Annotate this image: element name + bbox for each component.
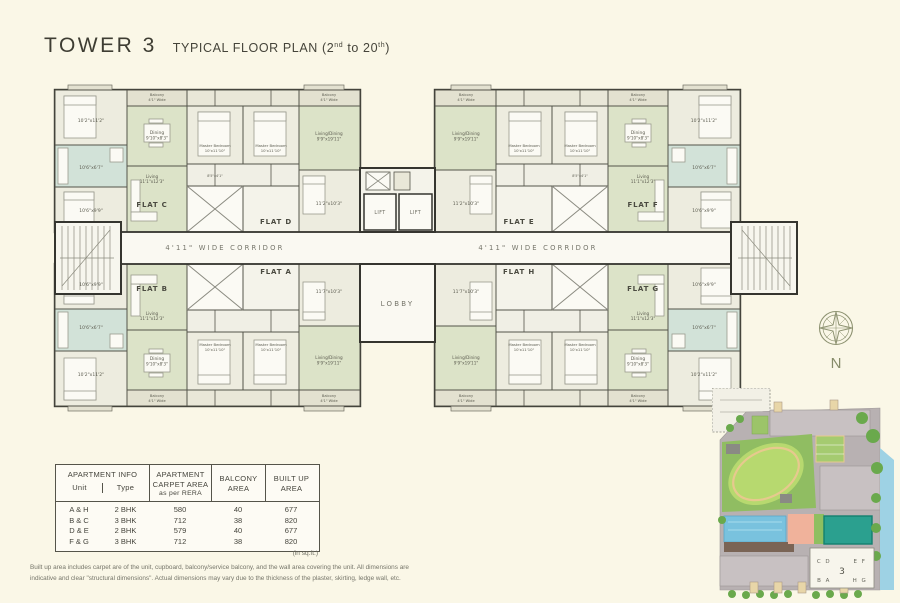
lift-label: LIFT [374,210,385,216]
tower3-flats-ba: B A [817,578,831,584]
header-line: CARPET AREA [151,480,210,490]
cell-built: 677 [265,526,317,537]
header-carpet-area: APARTMENT CARPET AREA as per RERA [149,465,211,501]
page-title: TOWER 3 [44,34,157,58]
header-line: as per RERA [151,490,210,499]
cell-balcony: 40 [211,505,265,516]
corridor-label-right: 4'11" WIDE CORRIDOR [478,244,597,252]
flat-h-label: FLAT H [503,268,535,276]
cell-balcony: 38 [211,537,265,548]
corridor-label-left: 4'11" WIDE CORRIDOR [165,244,284,252]
room-dim-label: 10'6"x6'7" [79,325,103,331]
group-label: APARTMENT INFO [57,470,148,480]
cell-type: 2 BHK [102,526,149,537]
room-dim-label: 10'6"x9'9" [692,208,716,214]
flat-d-label: FLAT D [260,218,292,226]
room-dim-label: 4'1" Wide [629,399,647,403]
room-dim-label: 10'x11'10" [205,347,226,352]
room-label: Balcony [459,93,474,97]
room-label: Balcony [322,394,337,398]
cell-unit: A & H [56,505,102,516]
header-line: BUILT UP [267,474,316,484]
table-row: A & H2 BHK58040677 [56,505,319,516]
header-line: APARTMENT [151,470,210,480]
table-body: A & H2 BHK58040677 B & C3 BHK71238820 D … [56,502,319,551]
room-dim-label: 4'1" Wide [320,98,338,102]
tower3-flats-cd: C D [817,559,831,565]
room-dim-label: 4'1" Wide [148,98,166,102]
tower3-number: 3 [839,567,845,577]
room-dim-label: 9'9"x19'11" [454,361,479,366]
subtitle-text: TYPICAL FLOOR PLAN (2 [173,41,334,55]
room-dim-label: 10'x11'10" [570,347,591,352]
flat-g-label: FLAT G [627,285,659,293]
planter [814,514,824,544]
lobby-label: LOBBY [381,300,415,308]
room-label: Balcony [150,394,165,398]
table-row: F & G3 BHK71238820 [56,537,319,548]
cell-built: 677 [265,505,317,516]
table-row: D & E2 BHK57940677 [56,526,319,537]
cell-carpet: 712 [149,537,211,548]
col-type: Type [103,483,148,493]
room-dim-label: 10'2"x11'2" [78,118,104,124]
room-dim-label: 4'1" Wide [148,399,166,403]
room-dim-label: 10'x11'10" [205,148,226,153]
room-dim-label: 11'1"x12'3" [140,179,165,184]
cell-carpet: 712 [149,516,211,527]
building-block [720,556,808,586]
page-header: TOWER 3 TYPICAL FLOOR PLAN (2nd to 20th) [44,34,390,58]
header-line: BALCONY [213,474,264,484]
table-row: B & C3 BHK71238820 [56,516,319,527]
room-dim-label: 10'6"x6'7" [692,165,716,171]
room-dim-label: 9'10"x8'3" [627,362,649,367]
room-dim-label: 4'1" Wide [320,399,338,403]
room-dim-label: 11'1"x12'3" [631,316,656,321]
cell-unit: B & C [56,516,102,527]
sports-court [824,516,872,544]
room-dim-label: 9'10"x8'3" [627,136,649,141]
room-label: Balcony [631,93,646,97]
cell-unit: D & E [56,526,102,537]
units-note: (in sq.ft.) [256,550,318,557]
cell-carpet: 580 [149,505,211,516]
cell-type: 3 BHK [102,537,149,548]
room-label: Balcony [631,394,646,398]
room-dim-label: 10'x11'10" [261,347,282,352]
room-dim-label: 10'6"x9'9" [79,282,103,288]
disclaimer-line: Built up area includes carpet are of the… [30,563,460,574]
brochure-page: TOWER 3 TYPICAL FLOOR PLAN (2nd to 20th) [0,0,900,603]
room-dim-label: 8'5"x4'1" [572,174,588,178]
room-dim-label: 10'6"x9'9" [79,208,103,214]
cell-built: 820 [265,516,317,527]
flat-a-label: FLAT A [260,268,292,276]
room-label: Living/Dining [315,131,343,136]
room-dim-label: 10'x11'10" [570,148,591,153]
flat-c-label: FLAT C [136,201,167,209]
room-dim-label: 10'2"x11'2" [691,372,717,378]
col-unit: Unit [57,483,103,493]
site-plan-keymap: C D E F 3 B A H G [712,388,896,600]
header-apartment-info: APARTMENT INFO Unit Type [56,465,149,501]
flat-f-label: FLAT F [628,201,659,209]
room-dim-label: 11'2"x10'3" [316,201,342,207]
room-dim-label: 10'x11'10" [514,347,535,352]
subtitle-text: ) [385,41,390,55]
table-header: APARTMENT INFO Unit Type APARTMENT CARPE… [56,465,319,502]
building-block [820,466,880,510]
room-label: Balcony [322,93,337,97]
room-label: Living/Dining [315,355,343,360]
room-dim-label: 10'x11'10" [514,148,535,153]
cell-unit: F & G [56,537,102,548]
floor-plan: 10'2"x11'2" 10'6"x6'7" 10'6"x9'9" Balcon… [52,80,802,425]
header-line: AREA [213,484,264,494]
header-balcony-area: BALCONY AREA [211,465,265,501]
subtitle-text: to 20 [343,41,378,55]
room-dim-label: 4'1" Wide [457,399,475,403]
disclaimer: Built up area includes carpet are of the… [30,563,460,585]
pool-deck [724,542,794,552]
lift-label: LIFT [410,210,421,216]
building-block [770,410,870,436]
room-dim-label: 10'2"x11'2" [78,372,104,378]
room-dim-label: 10'6"x9'9" [692,282,716,288]
room-dim-label: 11'7"x10'3" [453,289,479,295]
room-dim-label: 11'1"x12'3" [631,179,656,184]
room-dim-label: 10'6"x6'7" [692,325,716,331]
tower3-flats-hg: H G [853,578,868,584]
compass-north-label: N [831,355,842,372]
room-dim-label: 9'10"x8'3" [146,136,168,141]
room-dim-label: 11'2"x10'3" [453,201,479,207]
room-dim-label: 9'9"x19'11" [454,137,479,142]
flat-b-label: FLAT B [136,285,167,293]
apartment-info-table: APARTMENT INFO Unit Type APARTMENT CARPE… [55,464,320,552]
room-dim-label: 9'10"x8'3" [146,362,168,367]
flat-e-label: FLAT E [504,218,535,226]
room-dim-label: 8'5"x4'1" [207,174,223,178]
tower3-flats-ef: E F [854,559,867,565]
room-label: Balcony [459,394,474,398]
room-dim-label: 9'9"x19'11" [317,361,342,366]
cell-built: 820 [265,537,317,548]
room-dim-label: 9'9"x19'11" [317,137,342,142]
room-label: Balcony [150,93,165,97]
cell-balcony: 38 [211,516,265,527]
room-dim-label: 10'x11'10" [261,148,282,153]
compass: N [806,300,866,374]
room-label: Living/Dining [452,131,480,136]
stairs-right [731,222,797,294]
cell-balcony: 40 [211,526,265,537]
pavilion [780,494,792,503]
kids-area [788,514,814,544]
subtitle-sup: nd [334,42,343,49]
room-dim-label: 4'1" Wide [457,98,475,102]
swimming-pool [724,516,786,542]
cell-type: 2 BHK [102,505,149,516]
room-dim-label: 10'2"x11'2" [691,118,717,124]
pavilion [726,444,740,454]
play-court [816,436,844,462]
room-dim-label: 11'1"x12'3" [140,316,165,321]
room-dim-label: 10'6"x6'7" [79,165,103,171]
header-line: AREA [267,484,316,494]
header-builtup-area: BUILT UP AREA [265,465,317,501]
cell-carpet: 579 [149,526,211,537]
page-subtitle: TYPICAL FLOOR PLAN (2nd to 20th) [173,41,390,55]
cell-type: 3 BHK [102,516,149,527]
room-dim-label: 11'7"x10'3" [316,289,342,295]
disclaimer-line: indicative and clear "structural dimensi… [30,574,460,585]
room-label: Living/Dining [452,355,480,360]
room-dim-label: 4'1" Wide [629,98,647,102]
